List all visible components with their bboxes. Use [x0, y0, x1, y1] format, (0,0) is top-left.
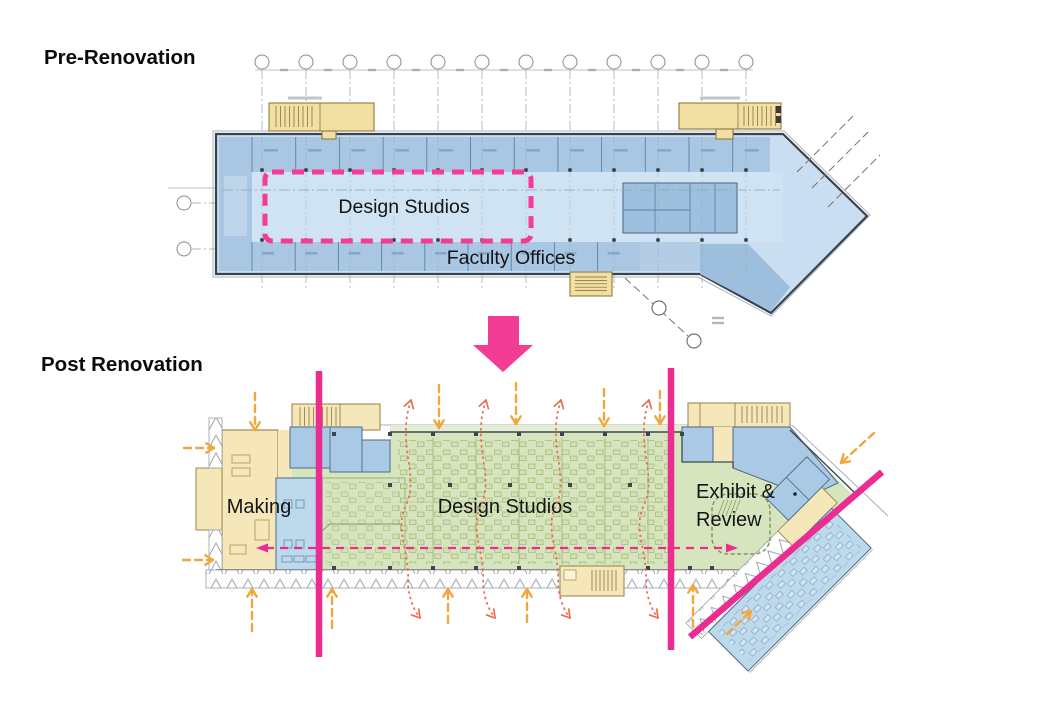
exhibit-review-label-line2: Review [696, 509, 762, 531]
pre-south-offices-east [640, 242, 700, 271]
pre-north-office-band [219, 137, 770, 172]
south-walkway-hatch [206, 570, 742, 588]
grid-bubble [431, 55, 445, 69]
pre-core-rooms [623, 183, 737, 233]
grid-bubble [177, 196, 191, 210]
grid-bubble [607, 55, 621, 69]
exhibit-review-label-line1: Exhibit & [696, 481, 776, 503]
stair-block-northeast [679, 97, 781, 140]
post-classroom-west [276, 478, 322, 572]
grid-bubble [177, 242, 191, 256]
post-design-studios-label: Design Studios [438, 496, 573, 518]
pre-design-studios-label: Design Studios [338, 196, 469, 218]
grid-bubble [739, 55, 753, 69]
post-stair-northeast [688, 403, 790, 427]
renovation-diagram: Design Studios Faculty Offices [0, 0, 1040, 720]
grid-bubble [475, 55, 489, 69]
west-entry-vestibule [196, 468, 222, 530]
grid-bubble [695, 55, 709, 69]
plan-dot [793, 492, 797, 496]
grid-bubble [387, 55, 401, 69]
post-renovation-title: Post Renovation [41, 353, 203, 376]
west-canopy-south-hatch [209, 530, 222, 572]
grid-bubble [255, 55, 269, 69]
west-canopy-north-hatch [209, 418, 222, 468]
pre-west-room [224, 176, 247, 236]
grid-bubble [563, 55, 577, 69]
down-arrow-icon [473, 316, 533, 372]
post-corridor-yellow [713, 427, 733, 462]
grid-bubble [651, 55, 665, 69]
pre-renovation-plan: Design Studios Faculty Offices [168, 55, 880, 348]
figure-canvas: Design Studios Faculty Offices [0, 0, 1040, 720]
grid-bubble [687, 334, 701, 348]
post-support-room-ne1 [682, 427, 713, 462]
grid-bubble [343, 55, 357, 69]
transformation-arrow [473, 316, 533, 372]
pre-renovation-title: Pre-Renovation [44, 46, 196, 69]
entry-arrow [841, 433, 874, 463]
post-support-rooms-west [290, 427, 390, 472]
pre-faculty-offices-label: Faculty Offices [447, 247, 576, 269]
grid-bubble [299, 55, 313, 69]
grid-bubble [519, 55, 533, 69]
post-renovation-plan: Making Design Studios Exhibit & Review [196, 403, 888, 680]
grid-bubble [652, 301, 666, 315]
making-label: Making [227, 496, 291, 518]
